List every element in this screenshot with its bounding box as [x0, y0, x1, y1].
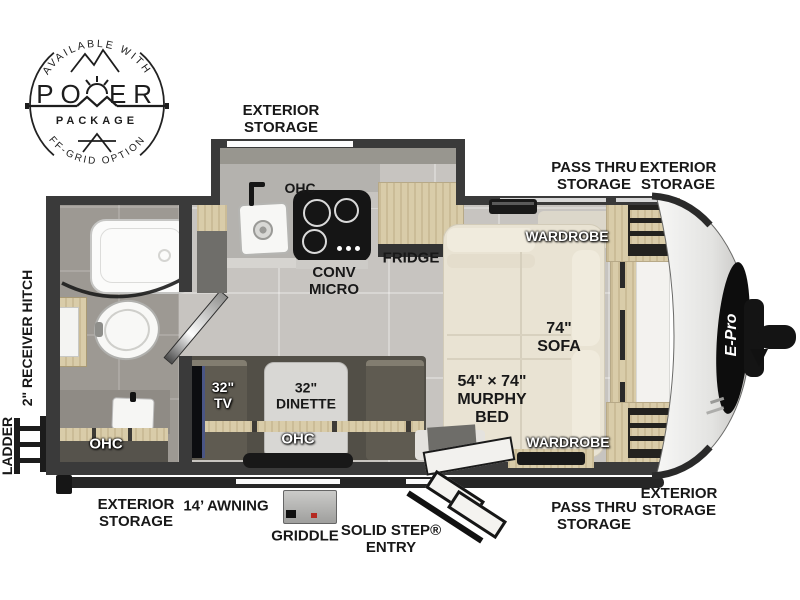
sofa-cushion: [447, 228, 535, 252]
window-top-right-glare: [492, 202, 534, 205]
shelf-gap: [332, 421, 337, 432]
ladder-rung: [14, 426, 46, 431]
label-ladder: LADDER: [0, 417, 16, 475]
label-kitchen-ohc: OHC: [284, 181, 315, 197]
label-bath-ohc: OHC: [89, 435, 122, 452]
label-tv: 32" TV: [212, 379, 234, 411]
label-wardrobe-top: WARDROBE: [525, 228, 608, 244]
front-cap: E-Pro: [640, 183, 800, 489]
kitchen-faucet-spout: [249, 182, 265, 187]
shelf-gap: [252, 421, 257, 432]
label-awning: 14’ AWNING: [183, 499, 268, 516]
stove: [293, 190, 371, 262]
label-wardrobe-bottom: WARDROBE: [526, 434, 609, 450]
kitchen-faucet: [249, 184, 254, 206]
vanity-faucet: [130, 392, 136, 402]
label-fridge: FRIDGE: [383, 251, 440, 268]
label-solid-step-entry: SOLID STEP® ENTRY: [341, 523, 441, 557]
ladder-rung: [14, 442, 46, 447]
wall-bath-lower: [179, 356, 192, 462]
label-exterior-storage-bottom-right: EXTERIOR STORAGE: [641, 486, 718, 520]
toilet-hinge: [95, 322, 103, 337]
ladder-icon: [12, 416, 52, 478]
badge-top-arc-text: AVAILABLE WITH: [40, 38, 154, 77]
stove-burner: [302, 229, 327, 254]
awning-rail-highlight: [236, 479, 340, 484]
bed-seam: [447, 358, 571, 360]
sunrise-icon: [86, 76, 108, 94]
slide-window: [227, 141, 353, 147]
awning-rail: [64, 477, 664, 488]
divider-end-left: [25, 103, 29, 109]
label-conv-micro: CONV MICRO: [309, 265, 359, 299]
kitchen-counter-edge: [220, 258, 296, 268]
sofa-bolster: [572, 350, 600, 444]
ladder-rung: [14, 458, 46, 463]
tv: [191, 366, 205, 458]
griddle-icon: [283, 490, 337, 524]
griddle-valve: [311, 513, 317, 518]
pantry-cabinet: [197, 205, 227, 231]
label-exterior-storage-top-right: EXTERIOR STORAGE: [640, 160, 717, 194]
window-bottom-center: [243, 453, 353, 468]
label-receiver-hitch: 2" RECEIVER HITCH: [20, 270, 36, 407]
label-murphy-bed: 54" × 74" MURPHY BED: [457, 373, 526, 427]
stove-knob: [346, 246, 351, 251]
divider-end-right: [165, 103, 169, 109]
label-dinette-ohc: OHC: [281, 430, 314, 447]
griddle-knob: [286, 510, 296, 518]
tent-icon: [78, 134, 116, 152]
rear-bumper-corner: [56, 475, 72, 494]
medicine-cabinet-mirror: [58, 307, 79, 357]
bath-ohc-seam: [128, 428, 132, 441]
e-pro-decal-text: E-Pro: [723, 313, 740, 356]
stove-knob: [337, 246, 342, 251]
window-bottom-right: [517, 452, 585, 465]
power-package-badge: AVAILABLE WITH OFF-GRID OPTIONS PO ER PA…: [15, 22, 179, 186]
hitch-arm: [758, 325, 796, 349]
vanity-sink: [111, 397, 154, 430]
bed-rail-slot: [620, 310, 625, 360]
label-pass-thru-top: PASS THRU STORAGE: [551, 160, 637, 194]
kitchen-counter-back: [220, 148, 456, 164]
label-exterior-storage-top: EXTERIOR STORAGE: [243, 103, 320, 137]
stove-burner: [303, 199, 331, 227]
shelf-gap: [406, 421, 411, 432]
pantry-base: [197, 231, 227, 293]
label-exterior-storage-bottom-left: EXTERIOR STORAGE: [98, 497, 175, 531]
stove-knob: [355, 246, 360, 251]
wall-bath-upper: [179, 200, 192, 292]
label-sofa: 74" SOFA: [537, 320, 581, 356]
stove-burner: [334, 198, 359, 223]
floorplan-diagram: AVAILABLE WITH OFF-GRID OPTIONS PO ER PA…: [0, 0, 800, 600]
badge-subtitle: PACKAGE: [56, 115, 138, 127]
slide-wall-left: [211, 139, 220, 205]
label-dinette: 32" DINETTE: [276, 380, 336, 411]
label-griddle: GRIDDLE: [271, 529, 339, 546]
kitchen-sink-drain: [253, 220, 273, 240]
label-pass-thru-bottom: PASS THRU STORAGE: [551, 500, 637, 534]
